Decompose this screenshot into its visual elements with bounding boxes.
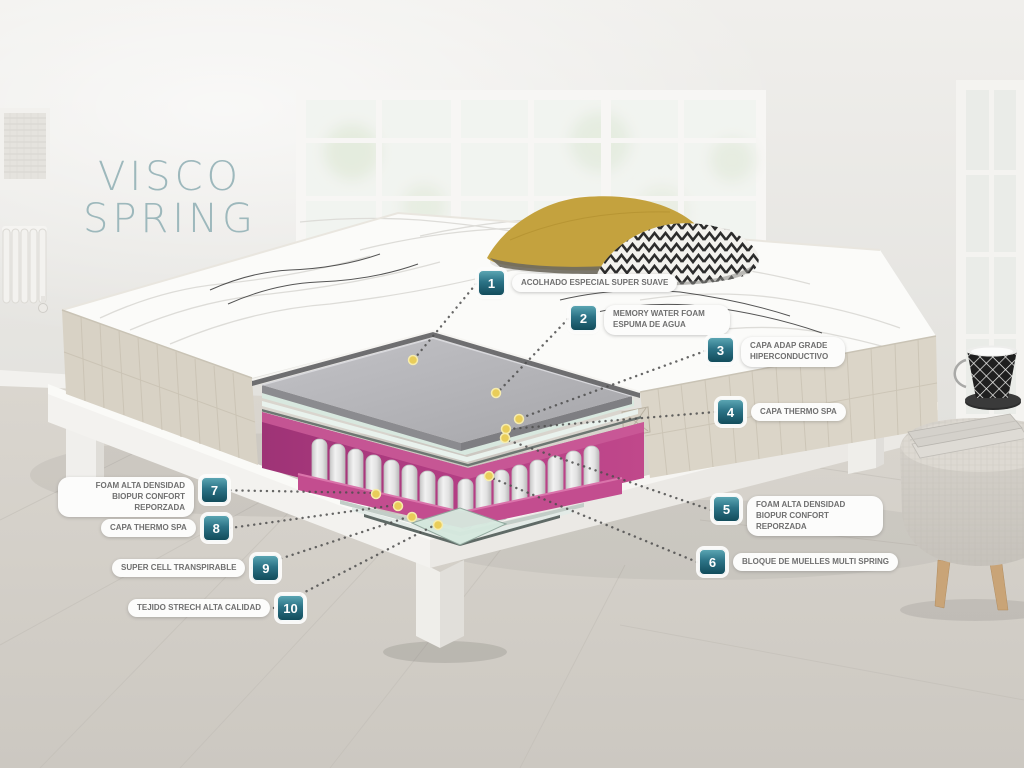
callout-5: 5 FOAM ALTA DENSIDAD BIOPUR CONFORT REPO… — [713, 496, 883, 536]
bed-leg-front — [416, 560, 464, 648]
callout-3: 3 CAPA ADAP GRADE HIPERCONDUCTIVO — [707, 337, 845, 367]
callout-6-label: BLOQUE DE MUELLES MULTI SPRING — [733, 553, 898, 572]
callout-2-badge: 2 — [570, 305, 597, 331]
callout-9: SUPER CELL TRANSPIRABLE 9 — [112, 555, 279, 581]
scene-illustration — [0, 0, 1024, 768]
callout-3-badge: 3 — [707, 337, 734, 363]
callout-5-label: FOAM ALTA DENSIDAD BIOPUR CONFORT REPORZ… — [747, 496, 883, 536]
callout-8: CAPA THERMO SPA 8 — [101, 515, 230, 541]
mattress-ad-image: VISCO SPRING 1 ACOLHADO ESPECIAL SUPER S… — [0, 0, 1024, 768]
product-title-line2: SPRING — [78, 198, 262, 240]
callout-4-label: CAPA THERMO SPA — [751, 403, 846, 422]
callout-2: 2 MEMORY WATER FOAM ESPUMA DE AGUA — [570, 305, 730, 335]
callout-8-label: CAPA THERMO SPA — [101, 519, 196, 538]
callout-10: TEJIDO STRECH ALTA CALIDAD 10 — [128, 595, 304, 621]
radiator — [2, 226, 48, 313]
callout-3-label: CAPA ADAP GRADE HIPERCONDUCTIVO — [741, 337, 845, 367]
callout-10-label: TEJIDO STRECH ALTA CALIDAD — [128, 599, 270, 618]
callout-6: 6 BLOQUE DE MUELLES MULTI SPRING — [699, 549, 898, 575]
window-small — [0, 108, 54, 190]
callout-4-badge: 4 — [717, 399, 744, 425]
product-title: VISCO SPRING — [78, 156, 262, 241]
callout-7-label: FOAM ALTA DENSIDAD BIOPUR CONFORT REPORZ… — [58, 477, 194, 517]
callout-1: 1 ACOLHADO ESPECIAL SUPER SUAVE — [478, 270, 677, 296]
callout-7: FOAM ALTA DENSIDAD BIOPUR CONFORT REPORZ… — [58, 477, 228, 517]
callout-5-badge: 5 — [713, 496, 740, 522]
callout-1-label: ACOLHADO ESPECIAL SUPER SUAVE — [512, 274, 677, 293]
callout-6-badge: 6 — [699, 549, 726, 575]
product-title-line1: VISCO — [78, 156, 262, 198]
callout-4: 4 CAPA THERMO SPA — [717, 399, 846, 425]
callout-9-label: SUPER CELL TRANSPIRABLE — [112, 559, 245, 578]
callout-8-badge: 8 — [203, 515, 230, 541]
callout-2-label: MEMORY WATER FOAM ESPUMA DE AGUA — [604, 305, 730, 335]
callout-9-badge: 9 — [252, 555, 279, 581]
callout-1-badge: 1 — [478, 270, 505, 296]
callout-10-badge: 10 — [277, 595, 304, 621]
callout-7-badge: 7 — [201, 477, 228, 503]
